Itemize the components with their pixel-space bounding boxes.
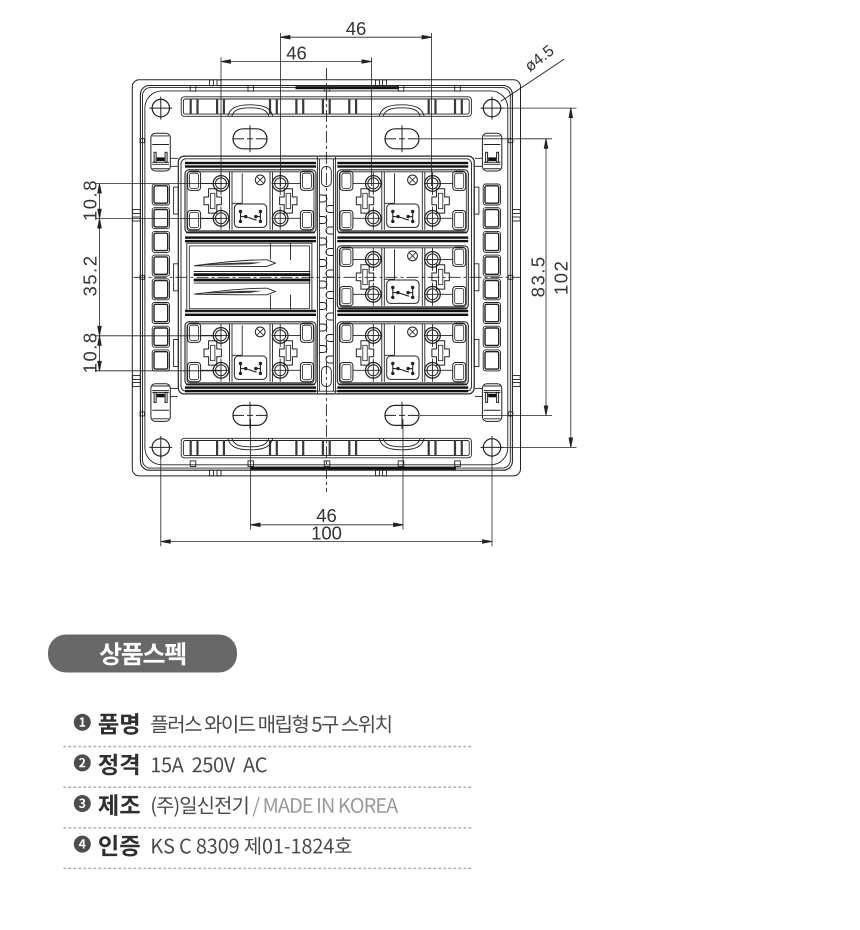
svg-text:102: 102: [551, 260, 572, 295]
svg-text:10.8: 10.8: [79, 179, 100, 221]
svg-text:ø4.5: ø4.5: [522, 42, 558, 75]
svg-text:35.2: 35.2: [79, 254, 100, 296]
svg-text:83.5: 83.5: [528, 255, 549, 297]
svg-text:46: 46: [286, 42, 307, 63]
svg-text:10.8: 10.8: [79, 331, 100, 373]
svg-text:100: 100: [311, 522, 342, 543]
svg-text:46: 46: [346, 18, 367, 39]
